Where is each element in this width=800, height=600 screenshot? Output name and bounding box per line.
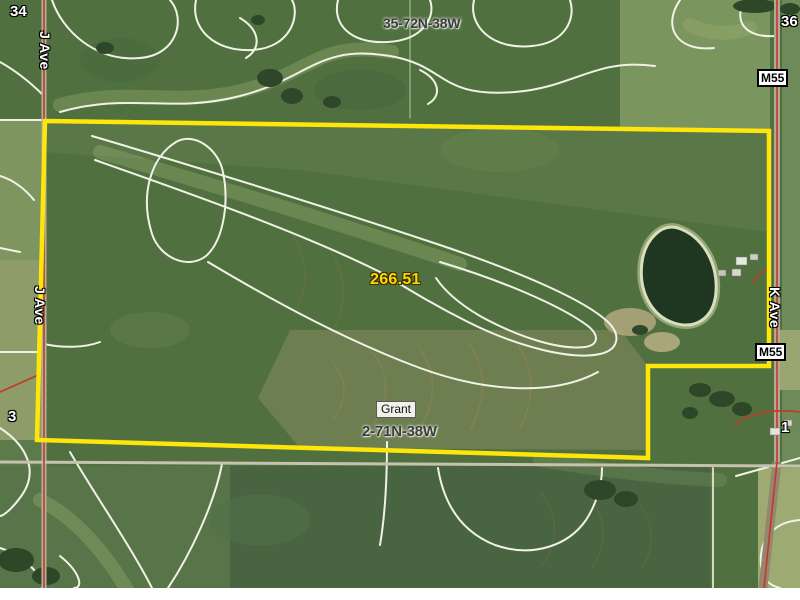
road-label-k-ave: K Ave <box>768 287 782 328</box>
township-label-north: 35-72N-38W <box>383 16 460 30</box>
township-label-south: 2-71N-38W <box>362 424 437 439</box>
section-label-1: 1 <box>781 420 789 435</box>
road-label-j-ave-top: J Ave <box>38 31 52 70</box>
parcel-acreage-label[interactable]: 266.51 <box>370 272 421 288</box>
road-label-j-ave-mid: J Ave <box>33 286 47 325</box>
section-label-3: 3 <box>8 409 16 424</box>
map-viewport[interactable]: 34 J Ave 35-72N-38W 36 M55 266.51 J Ave … <box>0 0 800 600</box>
section-label-36: 36 <box>781 14 798 29</box>
section-label-34: 34 <box>10 4 27 19</box>
aerial-basemap <box>0 0 800 588</box>
township-name-label: Grant <box>376 401 416 418</box>
highway-badge-m55-top: M55 <box>757 69 788 87</box>
highway-badge-m55-mid: M55 <box>755 343 786 361</box>
